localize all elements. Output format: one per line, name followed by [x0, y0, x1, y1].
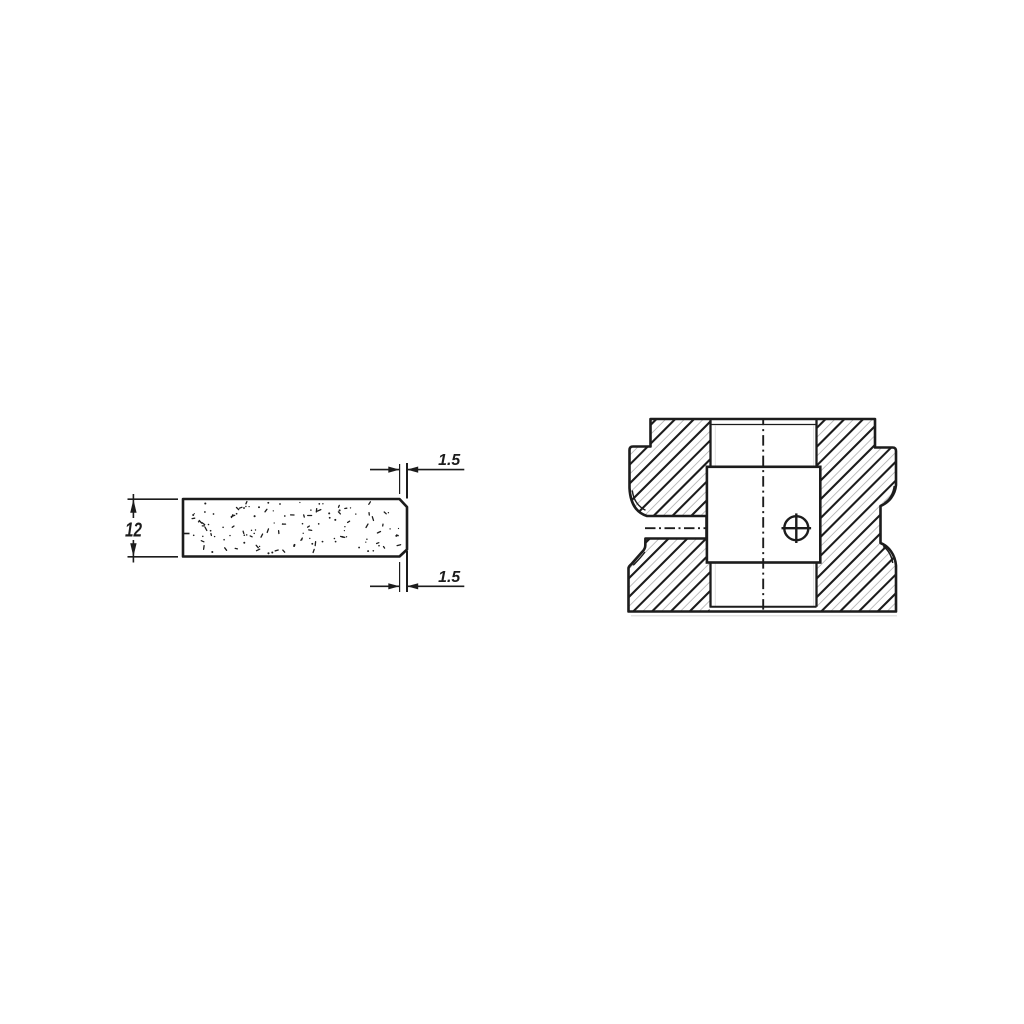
svg-text:1.5: 1.5 — [438, 452, 460, 469]
svg-text:1.5: 1.5 — [438, 569, 460, 586]
svg-text:12: 12 — [125, 520, 142, 542]
